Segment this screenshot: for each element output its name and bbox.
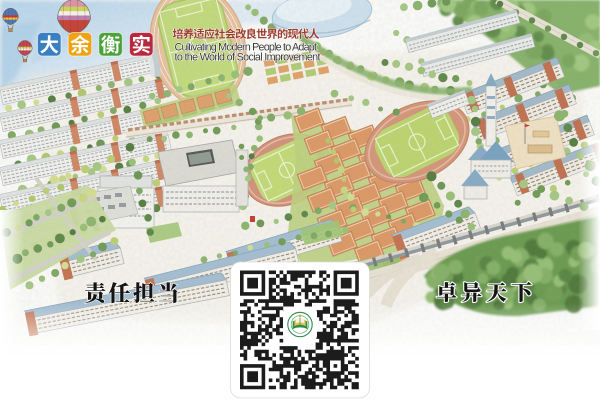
svg-text:to the World of Social Improve: to the World of Social Improvement	[175, 52, 321, 64]
